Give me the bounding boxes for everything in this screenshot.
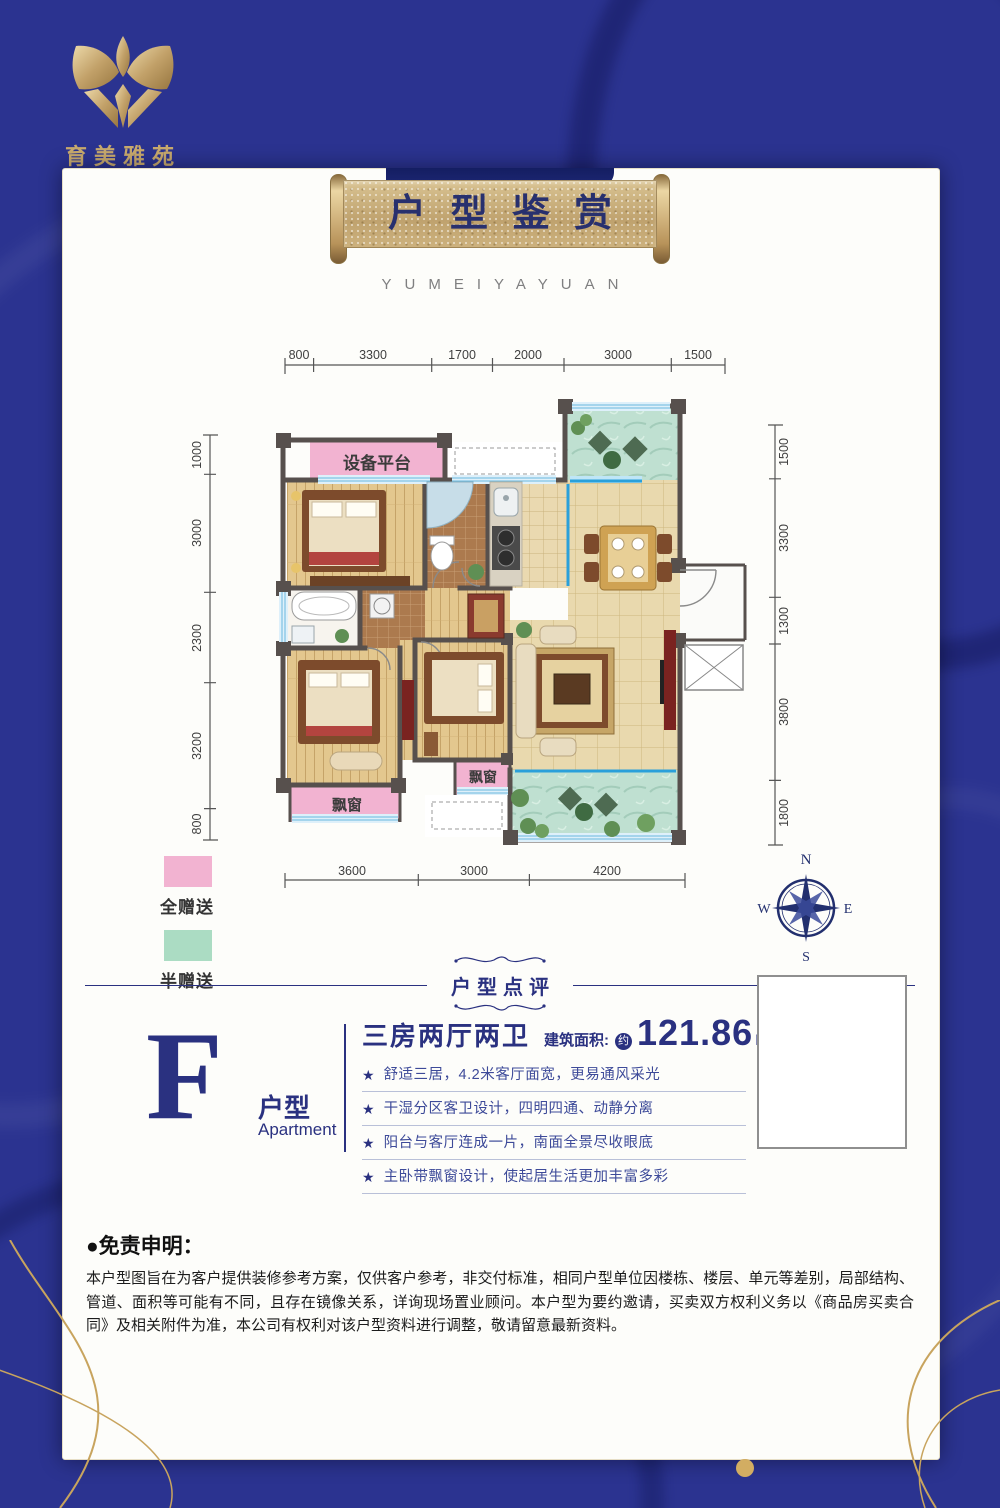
entry <box>680 565 745 640</box>
brand-name-cn: 育美雅苑 <box>48 139 198 171</box>
apartment-letter: F <box>146 1014 223 1140</box>
banner-title: 户型鉴赏 <box>343 180 657 248</box>
label-equipment-platform: 设备平台 <box>343 453 411 473</box>
area-approx-badge: 约 <box>615 1033 632 1050</box>
brand-logo: 育美雅苑 — YUMEIYAYUAN — <box>48 34 198 184</box>
divider-ornament: 户型点评 <box>427 953 573 1018</box>
selling-point-text: 干湿分区客卫设计，四明四通、动静分离 <box>384 1099 654 1119</box>
compass-icon: N S W E <box>756 850 856 964</box>
label-bay-window-master: 飘窗 <box>332 796 362 814</box>
disclaimer-heading: ●免责申明： <box>86 1230 204 1260</box>
dim-value: 3800 <box>777 698 791 726</box>
floor-plan: 设备平台 飘窗 飘窗 800 3300 1700 2000 3000 1500 … <box>180 330 820 910</box>
disclaimer-body: 本户型图旨在为客户提供装修参考方案，仅供客户参考，非交付标准，相同户型单位因楼栋… <box>86 1268 914 1339</box>
dim-value: 1800 <box>777 799 791 827</box>
headline-row: 三房两厅两卫 建筑面积: 约 121.86 m² <box>362 1012 778 1054</box>
dim-value: 3000 <box>460 864 488 878</box>
compass-e: E <box>844 902 853 917</box>
label-bay-window-second: 飘窗 <box>469 769 497 785</box>
compass-n: N <box>801 852 812 868</box>
ac-platform-dashed <box>432 802 502 829</box>
empty-info-box <box>757 975 907 1149</box>
dimensions-bottom: 3600 3000 4200 <box>285 864 685 888</box>
dim-value: 3300 <box>359 348 387 362</box>
window-strip <box>318 475 430 484</box>
stairwell <box>685 645 743 690</box>
poster-page: 育美雅苑 — YUMEIYAYUAN — 户型鉴赏 YUMEIYAYUAN <box>0 0 1000 1508</box>
compass-w: W <box>757 902 771 917</box>
dim-value: 1500 <box>684 348 712 362</box>
dimensions-right: 1500 3300 1300 3800 1800 <box>768 425 791 845</box>
dim-value: 3600 <box>338 864 366 878</box>
flourish-icon <box>452 1001 548 1013</box>
star-icon: ★ <box>362 1133 375 1153</box>
selling-point: ★ 阳台与客厅连成一片，南面全景尽收眼底 <box>362 1126 746 1160</box>
vertical-divider <box>344 1024 346 1152</box>
dim-value: 800 <box>190 814 204 835</box>
selling-point-text: 主卧带飘窗设计，使起居生活更加丰富多彩 <box>384 1167 669 1187</box>
dim-value: 3200 <box>190 732 204 760</box>
banner-subtitle: YUMEIYAYUAN <box>0 276 1000 293</box>
dim-value: 800 <box>289 348 310 362</box>
layout-headline: 三房两厅两卫 <box>362 1016 530 1053</box>
area-value: 121.86 <box>637 1012 753 1054</box>
dim-value: 1000 <box>190 441 204 469</box>
flourish-icon <box>452 954 548 966</box>
dim-value: 1700 <box>448 348 476 362</box>
outdoor-unit-dashed <box>455 448 555 474</box>
dim-value: 3300 <box>777 524 791 552</box>
star-icon: ★ <box>362 1167 375 1187</box>
entry-rug <box>468 594 504 638</box>
area-label: 建筑面积: <box>544 1029 609 1050</box>
selling-point-text: 舒适三居，4.2米客厅面宽，更易通风采光 <box>384 1065 661 1085</box>
dim-value: 2000 <box>514 348 542 362</box>
dim-value: 3000 <box>604 348 632 362</box>
brand-emblem-icon <box>58 34 188 130</box>
dimensions-left: 1000 3000 2300 3200 800 <box>190 435 218 840</box>
divider-title: 户型点评 <box>445 971 555 1000</box>
selling-point: ★ 主卧带飘窗设计，使起居生活更加丰富多彩 <box>362 1160 746 1194</box>
dim-value: 1500 <box>777 438 791 466</box>
kitchen-fixtures <box>490 482 522 586</box>
dim-value: 3000 <box>190 519 204 547</box>
selling-points: ★ 舒适三居，4.2米客厅面宽，更易通风采光 ★ 干湿分区客卫设计，四明四通、动… <box>362 1058 746 1194</box>
selling-point: ★ 舒适三居，4.2米客厅面宽，更易通风采光 <box>362 1058 746 1092</box>
divider-line <box>85 985 427 986</box>
star-icon: ★ <box>362 1099 375 1119</box>
banner-band: 户型鉴赏 <box>343 180 657 248</box>
dim-value: 1300 <box>777 607 791 635</box>
dim-value: 4200 <box>593 864 621 878</box>
legend-label-full-gift: 全赠送 <box>160 893 250 918</box>
legend-swatch-full-gift <box>164 856 212 887</box>
selling-point: ★ 干湿分区客卫设计，四明四通、动静分离 <box>362 1092 746 1126</box>
selling-point-text: 阳台与客厅连成一片，南面全景尽收眼底 <box>384 1133 654 1153</box>
dim-value: 2300 <box>190 624 204 652</box>
dimensions-top: 800 3300 1700 2000 3000 1500 <box>285 348 725 374</box>
gold-dot-icon <box>736 1459 754 1477</box>
scroll-banner: 户型鉴赏 <box>330 172 670 264</box>
apartment-type-en: Apartment <box>258 1120 336 1140</box>
star-icon: ★ <box>362 1065 375 1085</box>
